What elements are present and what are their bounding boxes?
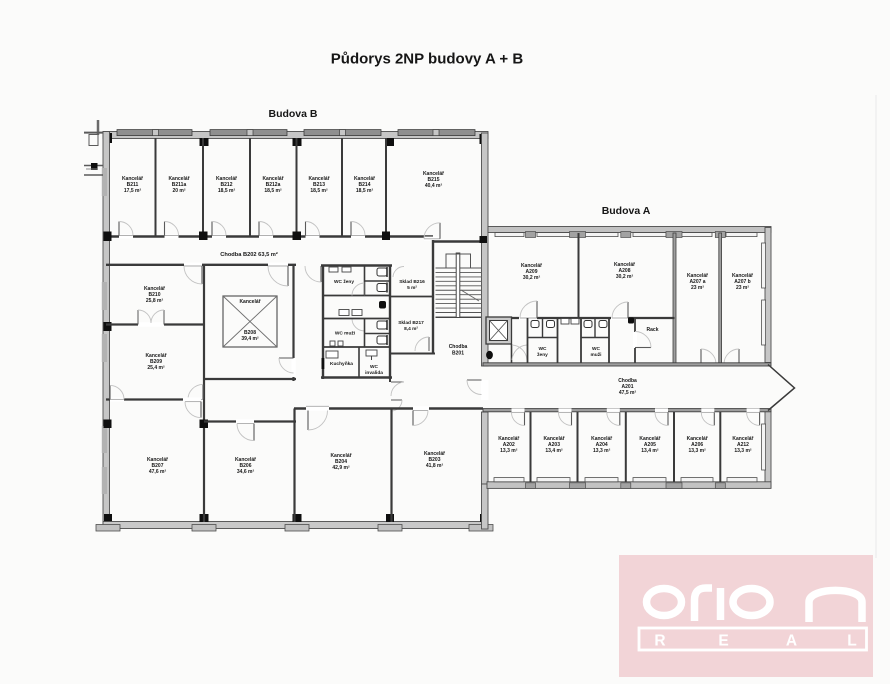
svg-text:Rack: Rack: [647, 327, 659, 333]
svg-text:A: A: [786, 633, 797, 650]
svg-text:WC ženy: WC ženy: [334, 279, 354, 285]
svg-text:18,5 m²: 18,5 m²: [264, 188, 282, 194]
svg-text:13,3 m²: 13,3 m²: [689, 448, 707, 454]
svg-text:WC: WC: [370, 364, 379, 370]
svg-text:13,3 m²: 13,3 m²: [593, 448, 611, 454]
svg-text:13,3 m²: 13,3 m²: [734, 448, 752, 454]
svg-text:23 m²: 23 m²: [691, 285, 704, 291]
svg-text:42,9 m²: 42,9 m²: [332, 465, 350, 471]
svg-text:Budova A: Budova A: [602, 205, 651, 217]
svg-text:23 m²: 23 m²: [736, 285, 749, 291]
svg-text:muži: muži: [591, 352, 602, 358]
svg-text:Chodba: Chodba: [449, 344, 468, 350]
svg-text:8,4 m²: 8,4 m²: [404, 326, 418, 332]
svg-text:E: E: [718, 633, 728, 650]
svg-text:WC: WC: [592, 346, 601, 352]
svg-text:13,3 m²: 13,3 m²: [500, 448, 518, 454]
svg-text:Sklad B217: Sklad B217: [398, 320, 424, 326]
svg-text:39,4 m²: 39,4 m²: [241, 336, 259, 342]
svg-text:WC muži: WC muži: [335, 331, 355, 337]
svg-text:25,4 m²: 25,4 m²: [147, 365, 165, 371]
svg-text:34,6 m²: 34,6 m²: [237, 469, 255, 475]
svg-text:18,5 m²: 18,5 m²: [218, 188, 236, 194]
svg-text:18,5 m²: 18,5 m²: [356, 188, 374, 194]
svg-text:Kuchyňka: Kuchyňka: [330, 361, 353, 367]
svg-text:13,4 m²: 13,4 m²: [545, 448, 563, 454]
svg-text:Budova B: Budova B: [268, 108, 317, 120]
svg-text:40,4 m²: 40,4 m²: [425, 183, 443, 189]
svg-text:17,5 m²: 17,5 m²: [124, 188, 142, 194]
svg-text:18,5 m²: 18,5 m²: [310, 188, 328, 194]
svg-text:30,2 m²: 30,2 m²: [523, 275, 541, 281]
svg-text:B201: B201: [452, 351, 464, 357]
svg-text:47,6 m²: 47,6 m²: [149, 469, 167, 475]
svg-text:25,8 m²: 25,8 m²: [146, 298, 164, 304]
svg-text:Sklad B216: Sklad B216: [399, 279, 425, 285]
svg-text:5 m²: 5 m²: [407, 285, 417, 291]
svg-text:41,8 m²: 41,8 m²: [426, 463, 444, 469]
svg-text:20 m²: 20 m²: [172, 188, 185, 194]
svg-text:invalida: invalida: [365, 370, 383, 376]
svg-text:30,2 m²: 30,2 m²: [616, 274, 634, 280]
svg-text:13,4 m²: 13,4 m²: [641, 448, 659, 454]
svg-text:Kancelář: Kancelář: [239, 299, 260, 305]
svg-text:WC: WC: [539, 346, 548, 352]
svg-text:Půdorys 2NP budovy A + B: Půdorys 2NP budovy A + B: [331, 51, 524, 68]
svg-text:ženy: ženy: [537, 352, 548, 358]
svg-text:L: L: [847, 633, 856, 650]
svg-text:Chodba B202 63,5 m²: Chodba B202 63,5 m²: [220, 251, 278, 258]
svg-text:47,5 m²: 47,5 m²: [619, 390, 637, 396]
svg-text:R: R: [654, 633, 665, 650]
